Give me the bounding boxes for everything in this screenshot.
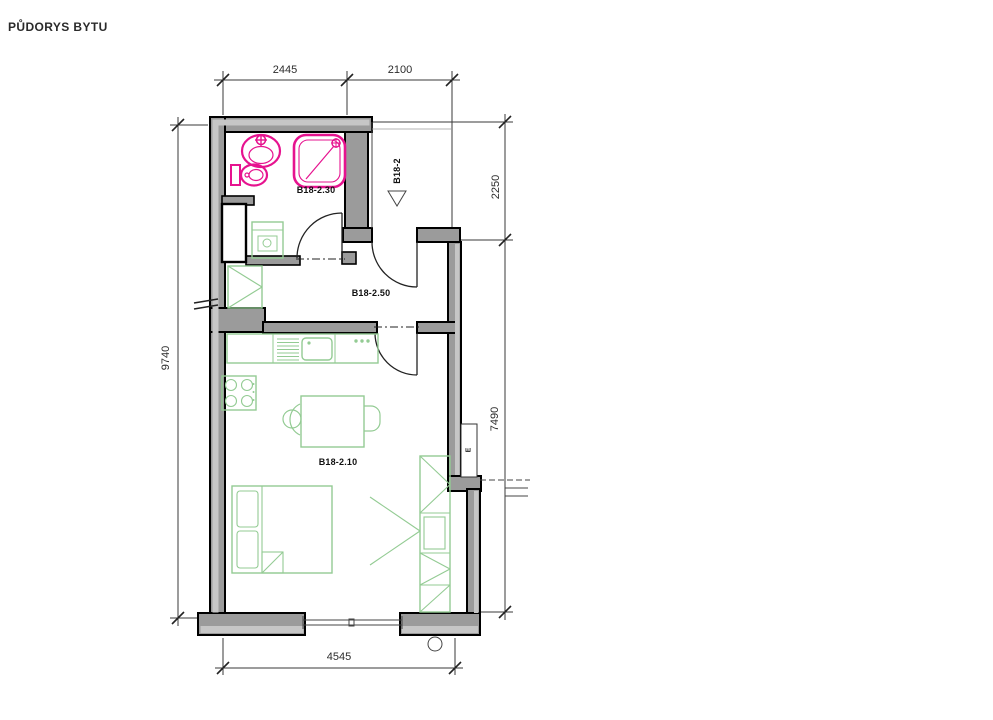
door-swing-indicator	[370, 497, 420, 531]
dim-right-2: 7490	[489, 407, 501, 431]
living-room-door	[374, 327, 419, 375]
wardrobe	[370, 456, 450, 612]
wall-bathdoor-jamb	[342, 252, 356, 264]
circle-marker-icon	[428, 637, 442, 651]
floor-plan-drawing	[0, 0, 993, 720]
wall-hall-bottom-right	[417, 322, 458, 333]
room-label-entry-lobby: B18-2	[392, 158, 402, 184]
room-label-living-room: B18-2.10	[319, 457, 358, 467]
room-label-hallway: B18-2.50	[352, 288, 391, 298]
hall-wardrobe	[228, 266, 262, 308]
shower	[294, 135, 345, 187]
washbasin	[242, 134, 280, 167]
wall-hall-bottom	[263, 322, 377, 333]
dim-top-2: 2100	[388, 64, 412, 76]
dim-bottom-1: 4545	[327, 651, 351, 663]
bathroom-fixtures	[231, 134, 345, 187]
toilet	[231, 165, 267, 186]
chair-right	[364, 406, 380, 431]
entry-direction-triangle-icon	[388, 191, 406, 206]
installation-shaft	[222, 204, 246, 262]
bathroom-door	[296, 213, 345, 259]
kitchen-counter	[227, 334, 378, 363]
dim-top-1: 2445	[273, 64, 297, 76]
floor-plan-page: PŮDORYS BYTU	[0, 0, 993, 720]
pillow	[237, 491, 258, 527]
stove	[222, 376, 256, 410]
bed	[232, 486, 332, 573]
door-swing-indicator	[370, 531, 420, 565]
electric-meter-label: E	[466, 448, 473, 453]
dim-left-1: 9740	[160, 346, 172, 370]
sink	[277, 338, 332, 360]
entry-lobby-outline	[372, 122, 452, 228]
dining-table	[283, 396, 380, 447]
furniture	[222, 222, 450, 612]
wall-entry-pier-right	[417, 228, 460, 242]
pillow	[237, 531, 258, 568]
wall-bathroom-right	[345, 132, 368, 228]
wall-entry-pier-left	[343, 228, 372, 242]
dim-right-1: 2250	[490, 175, 502, 199]
room-label-bathroom: B18-2.30	[297, 185, 336, 195]
window	[303, 616, 402, 629]
washing-machine	[252, 222, 283, 258]
entry-door	[372, 242, 417, 287]
